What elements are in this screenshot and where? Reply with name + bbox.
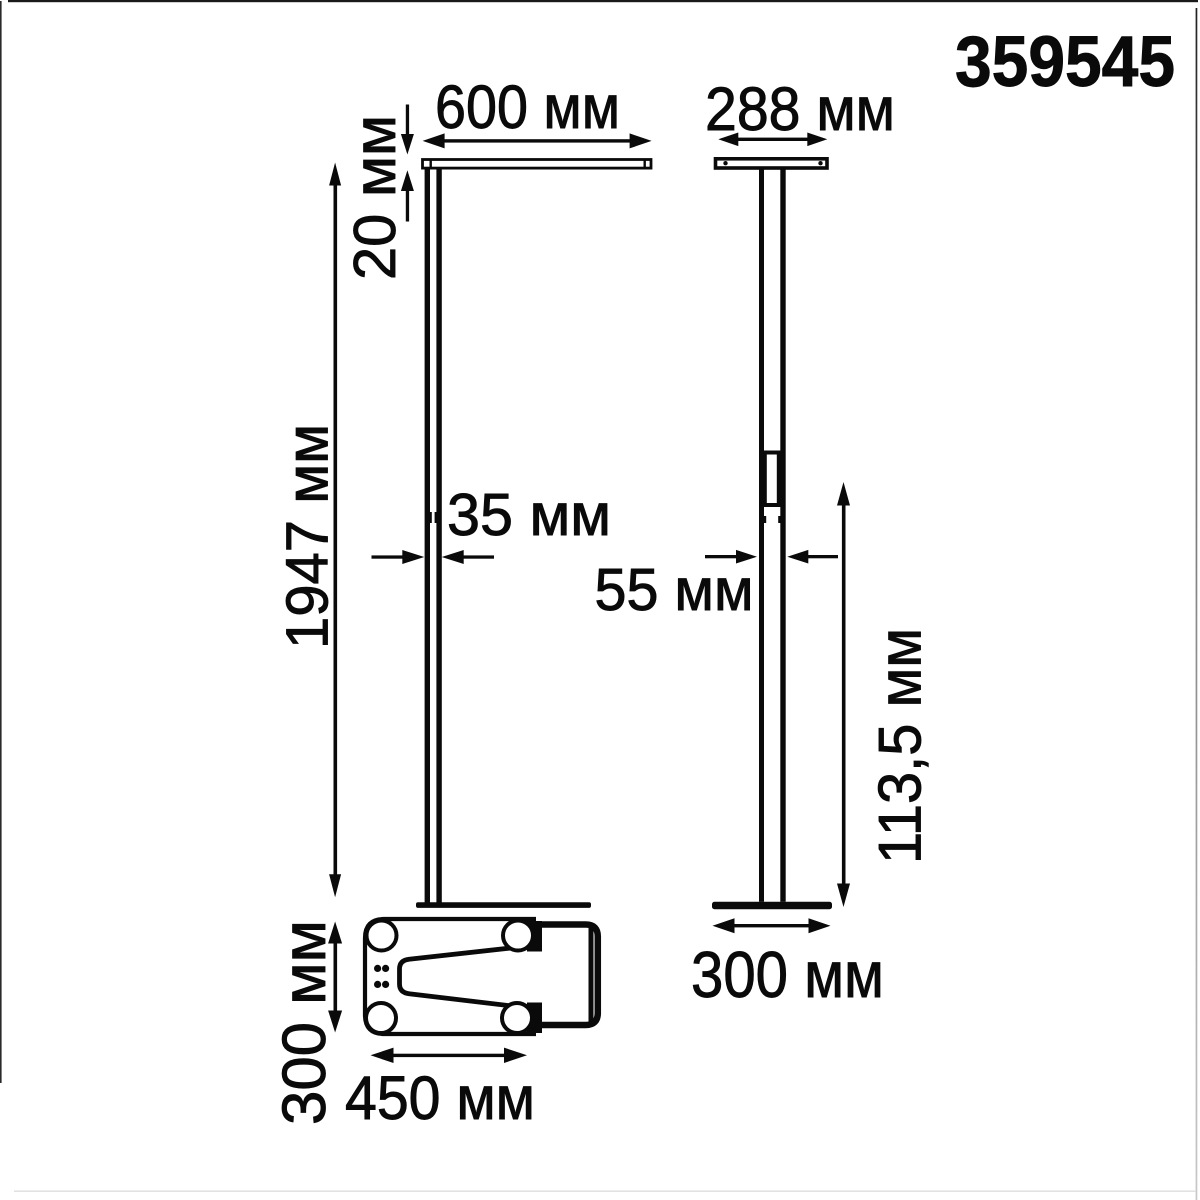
- svg-text:300 мм: 300 мм: [691, 938, 884, 1011]
- svg-text:35 мм: 35 мм: [447, 482, 611, 548]
- svg-text:1947 мм: 1947 мм: [275, 424, 341, 649]
- svg-text:450 мм: 450 мм: [345, 1064, 535, 1132]
- svg-text:288 мм: 288 мм: [705, 75, 895, 143]
- svg-text:113,5 мм: 113,5 мм: [867, 628, 934, 864]
- svg-text:359545: 359545: [955, 23, 1175, 102]
- svg-text:20 мм: 20 мм: [342, 115, 408, 280]
- svg-text:300 мм: 300 мм: [270, 920, 338, 1125]
- svg-text:55 мм: 55 мм: [595, 557, 754, 623]
- svg-text:600 мм: 600 мм: [435, 73, 620, 141]
